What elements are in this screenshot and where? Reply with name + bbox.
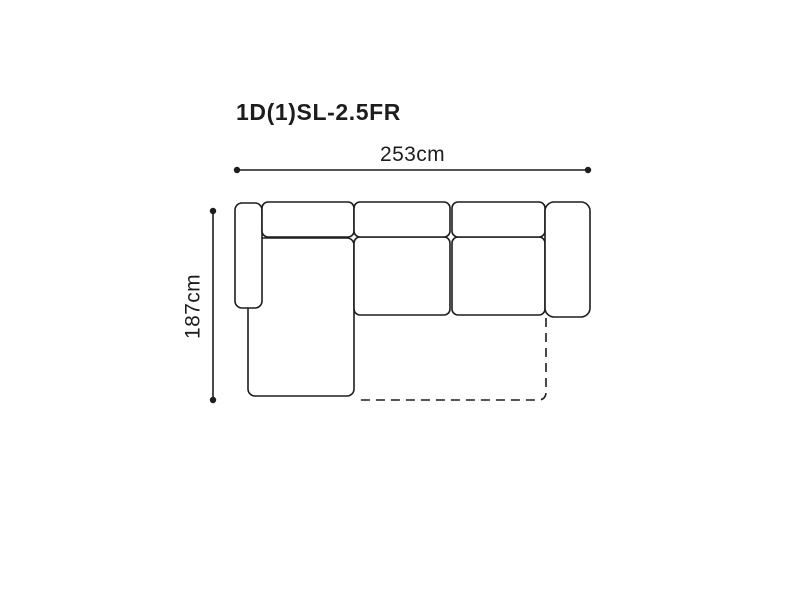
sofa-seat-middle (354, 237, 450, 315)
footprint-dashed-outline (357, 318, 546, 400)
width-dim-right-dot (585, 167, 591, 173)
dimension-diagram: 1D(1)SL-2.5FR 253cm 187cm (0, 0, 800, 600)
sofa-back-cushion-middle (354, 202, 450, 237)
depth-dim-bottom-dot (210, 397, 216, 403)
sofa-back-cushion-right (452, 202, 545, 237)
depth-dimension-line (210, 208, 216, 403)
width-dim-left-dot (234, 167, 240, 173)
sofa-right-armrest (545, 202, 590, 317)
sofa-back-cushion-left (262, 202, 354, 237)
sofa-left-armrest (235, 203, 262, 308)
width-dimension-line (234, 167, 591, 173)
depth-dim-top-dot (210, 208, 216, 214)
sofa-chaise-seat (248, 238, 354, 396)
sofa-top-view-drawing (0, 0, 800, 600)
sofa-seat-right (452, 237, 545, 315)
